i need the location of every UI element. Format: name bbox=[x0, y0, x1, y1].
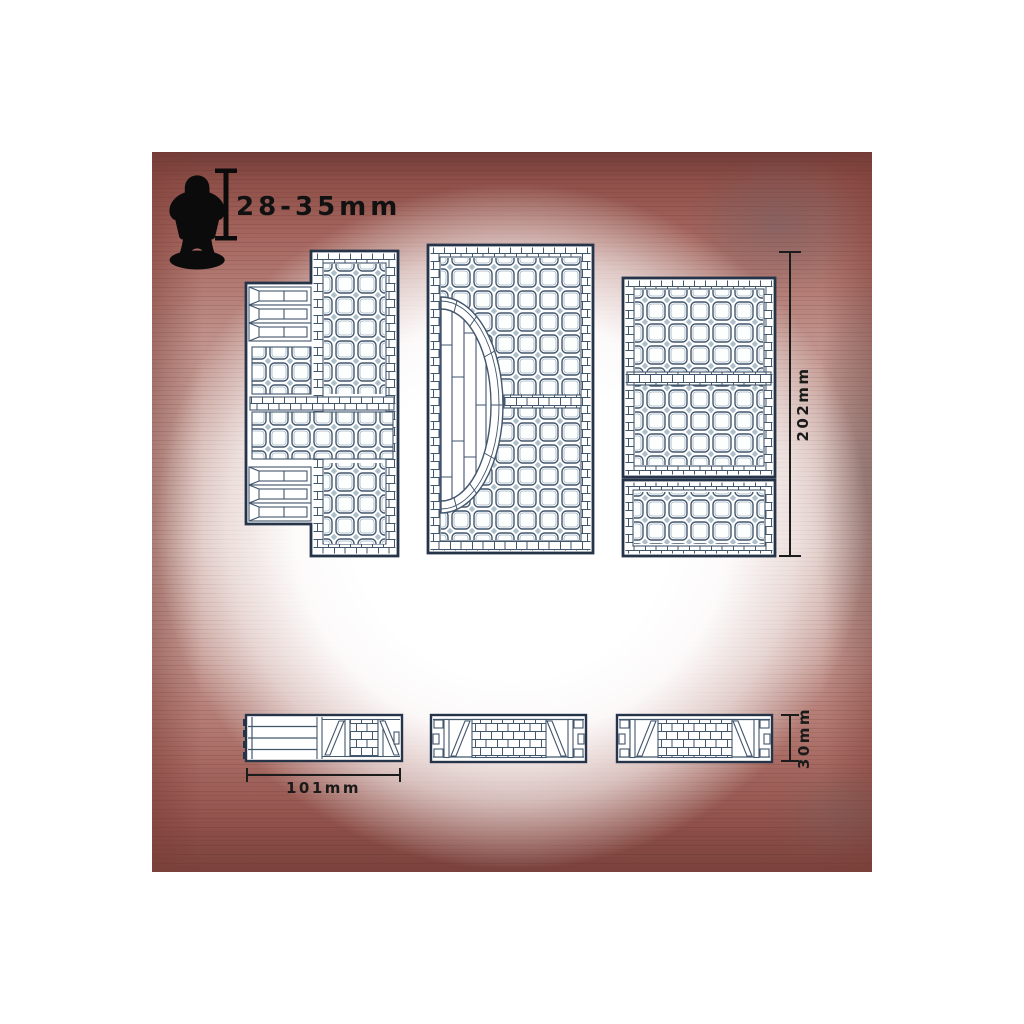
drawing-arc-tile bbox=[428, 245, 593, 553]
dimension-wall-length: 101mm bbox=[247, 779, 400, 797]
technical-drawing-canvas bbox=[152, 152, 872, 872]
scale-range-label: 28-35mm bbox=[236, 192, 401, 222]
wall-strip-stairs bbox=[243, 715, 402, 761]
wall-strip-brick-1 bbox=[431, 715, 586, 762]
miniature-figure-icon bbox=[169, 175, 224, 269]
drawing-l-shaped-tile bbox=[246, 251, 398, 556]
dimension-tile-height: 202mm bbox=[794, 366, 812, 441]
dimension-wall-height: 30mm bbox=[795, 707, 813, 769]
drawing-rect-tiles bbox=[623, 278, 775, 556]
product-photo: 28-35mm 202mm 101mm 30mm bbox=[152, 152, 872, 872]
wall-strip-brick-2 bbox=[617, 715, 772, 762]
